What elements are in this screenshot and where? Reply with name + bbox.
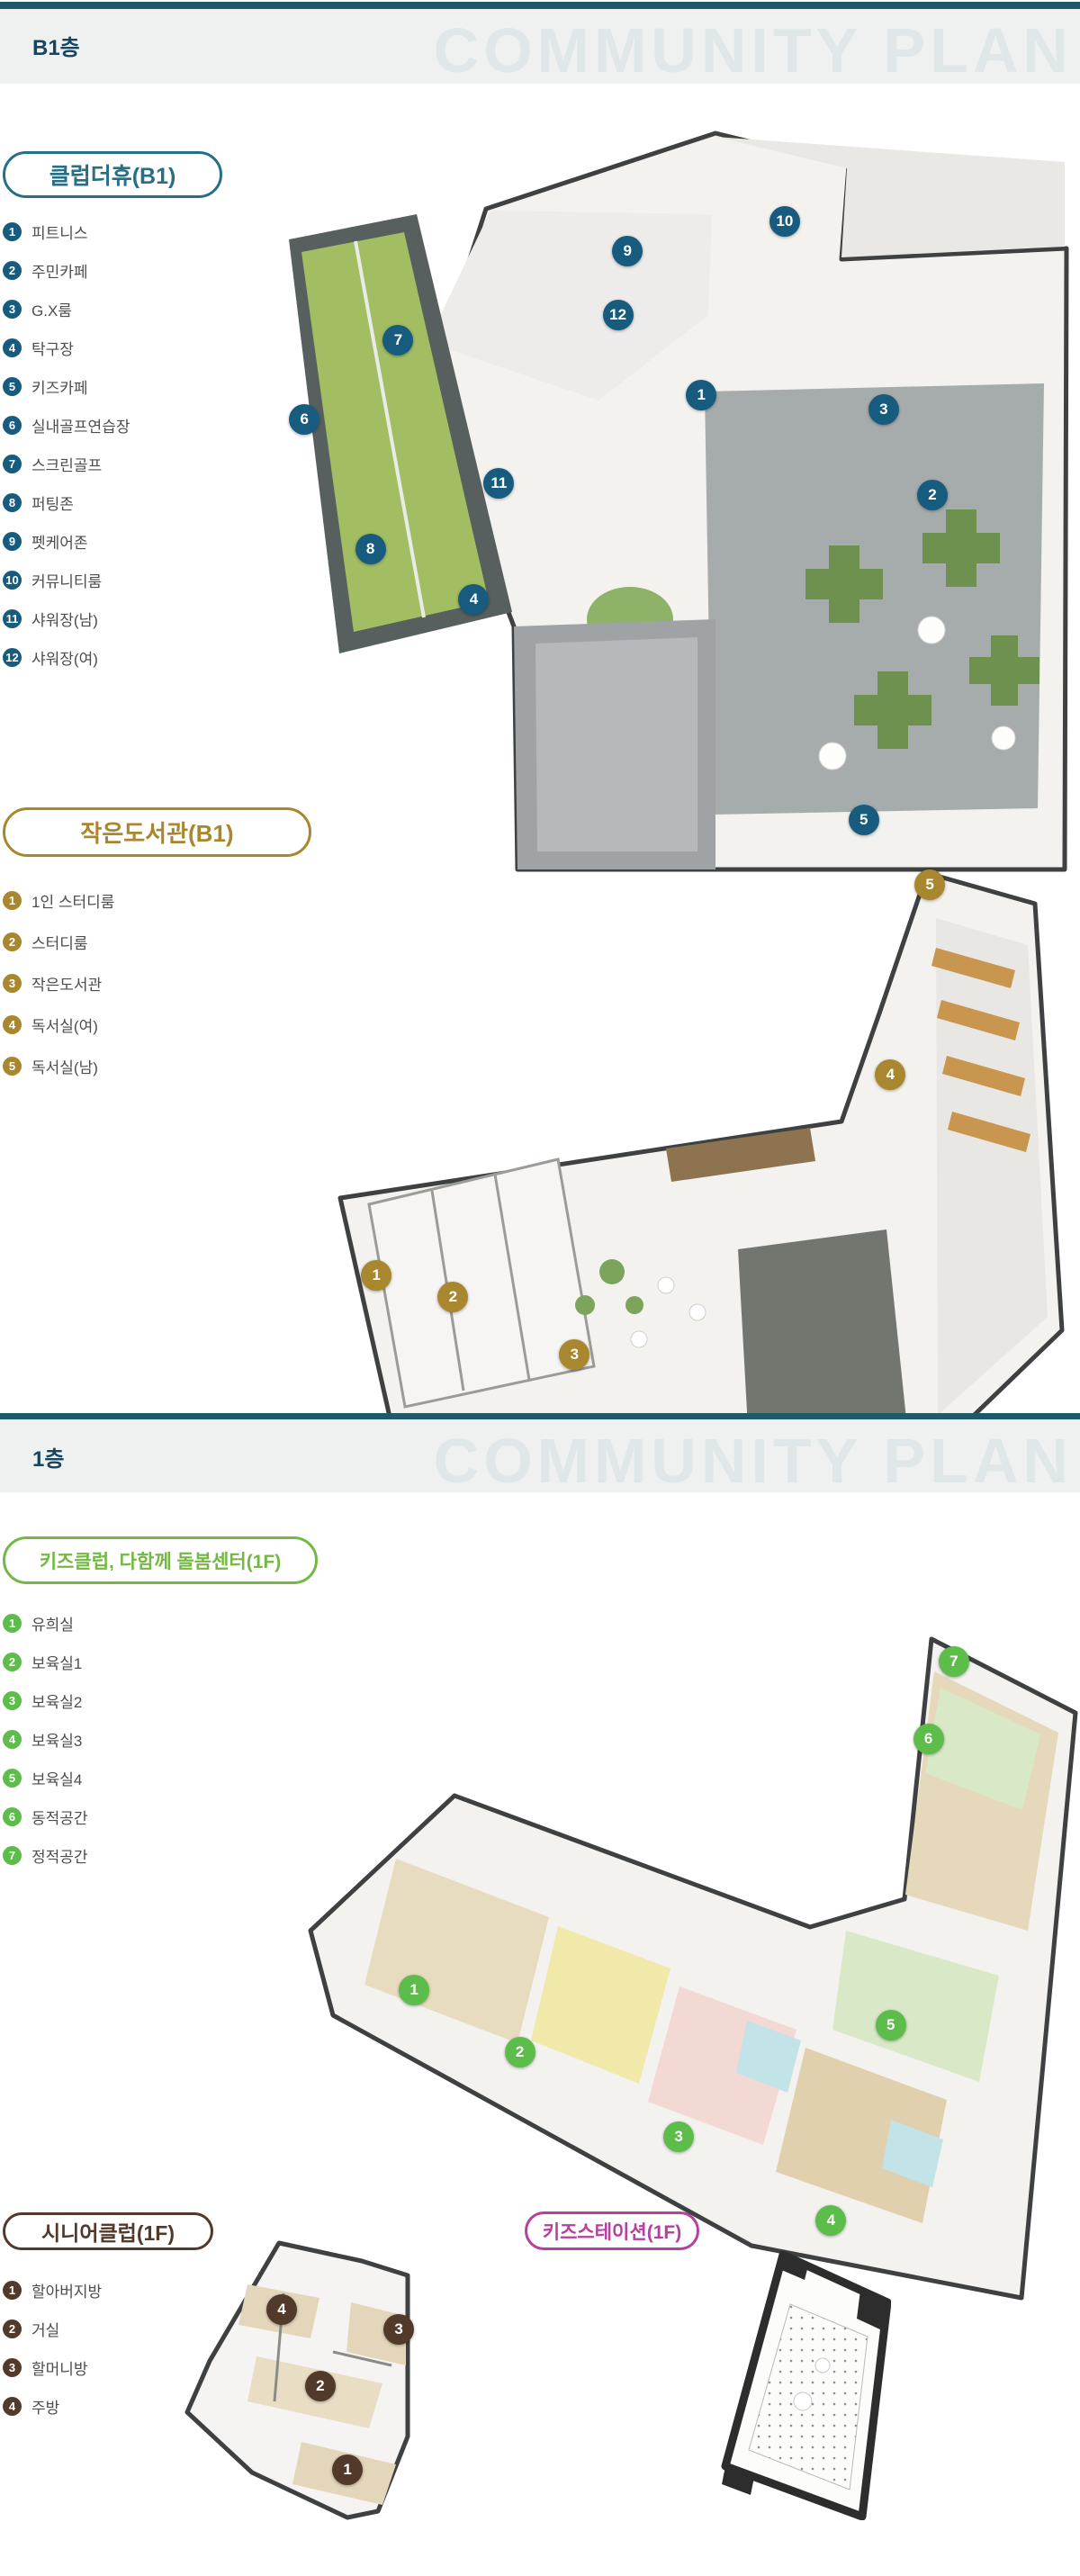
legend-item: 11샤워장(남) (3, 609, 130, 628)
club-umbrella (918, 617, 945, 644)
legend-item: 2스터디룸 (3, 932, 114, 951)
legend-item-label: 샤워장(남) (31, 608, 98, 630)
legend-item: 6실내골프연습장 (3, 416, 130, 435)
legend-item: 8퍼팅존 (3, 493, 130, 512)
plan-marker-kids-6: 6 (913, 1724, 944, 1754)
plan-marker-library-2: 2 (437, 1282, 468, 1312)
legend-number-badge: 1 (3, 1614, 22, 1633)
legend-item-label: 할아버지방 (31, 2279, 102, 2301)
legend-club-the-hue: 1피트니스2주민카페3G.X룸4탁구장5키즈카페6실내골프연습장7스크린골프8퍼… (3, 222, 130, 687)
floor-title-1f: 1층 (32, 1441, 64, 1473)
legend-number-badge: 5 (3, 1769, 22, 1788)
legend-item-label: 보육실2 (31, 1689, 82, 1712)
legend-number-badge: 1 (3, 2281, 22, 2300)
legend-item-label: 독서실(여) (31, 1013, 98, 1036)
legend-item-label: 거실 (31, 2318, 59, 2340)
floorplan-senior-club: 1234 (175, 2239, 423, 2526)
plan-marker-club-3: 3 (868, 394, 899, 425)
plan-marker-club-4: 4 (458, 584, 489, 615)
plan-marker-kids-1: 1 (399, 1975, 429, 2005)
legend-item: 1할아버지방 (3, 2281, 102, 2300)
legend-number-badge: 2 (3, 2319, 22, 2338)
legend-number-badge: 5 (3, 377, 22, 396)
legend-item: 1유희실 (3, 1614, 88, 1633)
legend-number-badge: 4 (3, 1730, 22, 1749)
library-study-rooms (369, 1159, 594, 1407)
legend-number-badge: 1 (3, 891, 22, 910)
section-accent-line (0, 1413, 1080, 1419)
legend-number-badge: 4 (3, 1015, 22, 1034)
legend-number-badge: 2 (3, 932, 22, 951)
legend-item-label: 키즈카페 (31, 375, 88, 398)
legend-kids-club: 1유희실2보육실13보육실24보육실35보육실46동적공간7정적공간 (3, 1614, 88, 1885)
legend-item-label: G.X룸 (31, 298, 72, 320)
legend-item: 5키즈카페 (3, 377, 130, 396)
legend-item: 3작은도서관 (3, 974, 114, 993)
legend-number-badge: 7 (3, 455, 22, 473)
kids-station-table (794, 2392, 812, 2410)
legend-item: 3보육실2 (3, 1691, 88, 1710)
legend-item-label: 샤워장(여) (31, 646, 98, 669)
legend-item-label: 보육실4 (31, 1767, 82, 1789)
legend-number-badge: 12 (3, 648, 22, 667)
plan-marker-club-6: 6 (289, 404, 319, 435)
plan-marker-library-3: 3 (559, 1339, 589, 1370)
legend-item: 5보육실4 (3, 1769, 88, 1788)
legend-number-badge: 6 (3, 1807, 22, 1826)
legend-item: 9펫케어존 (3, 532, 130, 551)
legend-item: 12샤워장(여) (3, 648, 130, 667)
legend-item-label: 독서실(남) (31, 1055, 98, 1077)
library-plants (575, 1295, 595, 1315)
plan-marker-kids-3: 3 (663, 2121, 694, 2152)
legend-item-label: 주민카페 (31, 259, 88, 282)
legend-item: 7정적공간 (3, 1846, 88, 1865)
group-pill-kids-club: 키즈클럽, 다함께 돌봄센터(1F) (3, 1536, 318, 1584)
club-multipurpose-floor (535, 637, 697, 851)
plan-marker-club-10: 10 (769, 206, 800, 237)
plan-marker-club-11: 11 (483, 468, 514, 499)
floorplan-kids-club: 1234567 (261, 1634, 1080, 2304)
plan-marker-club-9: 9 (612, 236, 643, 266)
legend-item: 11인 스터디룸 (3, 891, 114, 910)
plan-marker-library-1: 1 (361, 1260, 391, 1291)
legend-item: 3할머니방 (3, 2358, 102, 2377)
legend-number-badge: 2 (3, 1653, 22, 1671)
plan-marker-library-5: 5 (914, 869, 945, 900)
legend-item: 2보육실1 (3, 1653, 88, 1671)
legend-item: 2주민카페 (3, 261, 130, 280)
plan-marker-club-5: 5 (849, 805, 879, 835)
legend-item-label: 스터디룸 (31, 931, 88, 953)
legend-number-badge: 3 (3, 974, 22, 993)
plan-marker-kids-7: 7 (939, 1646, 969, 1677)
legend-item: 2거실 (3, 2319, 102, 2338)
legend-number-badge: 10 (3, 571, 22, 590)
legend-item: 5독서실(남) (3, 1057, 114, 1076)
plan-marker-senior-3: 3 (383, 2314, 414, 2345)
legend-number-badge: 5 (3, 1057, 22, 1076)
legend-number-badge: 6 (3, 416, 22, 435)
legend-item-label: 정적공간 (31, 1844, 88, 1867)
floorplan-club-illustration (211, 126, 1080, 878)
legend-item-label: 보육실3 (31, 1728, 82, 1751)
legend-item: 4독서실(여) (3, 1015, 114, 1034)
legend-item-label: 커뮤니티룸 (31, 569, 102, 591)
legend-small-library: 11인 스터디룸2스터디룸3작은도서관4독서실(여)5독서실(남) (3, 891, 114, 1098)
legend-senior-club: 1할아버지방2거실3할머니방4주방 (3, 2281, 102, 2436)
kids-station-table (815, 2358, 830, 2373)
floorplan-senior-illustration (175, 2239, 423, 2526)
plan-marker-kids-5: 5 (876, 2010, 906, 2040)
legend-item-label: 실내골프연습장 (31, 414, 130, 437)
floorplan-kids-illustration (261, 1634, 1080, 2304)
floorplan-kids-station (702, 2250, 891, 2520)
group-pill-club-the-hue: 클럽더휴(B1) (3, 151, 222, 198)
legend-number-badge: 3 (3, 300, 22, 319)
legend-item-label: 주방 (31, 2395, 59, 2418)
floorplan-small-library: 12345 (306, 851, 1080, 1472)
legend-item: 4탁구장 (3, 338, 130, 357)
plan-marker-senior-1: 1 (332, 2454, 363, 2485)
legend-number-badge: 4 (3, 338, 22, 357)
floorplan-club-the-hue: 123456789101112 (211, 126, 1080, 878)
legend-item-label: 동적공간 (31, 1806, 88, 1828)
community-plan-page: COMMUNITY PLAN B1층 클럽더휴(B1) 작은도서관(B1) 키즈… (0, 0, 1080, 2576)
club-umbrella (992, 726, 1015, 750)
legend-number-badge: 7 (3, 1846, 22, 1865)
plan-marker-kids-2: 2 (505, 2037, 535, 2067)
community-plan-watermark: COMMUNITY PLAN (434, 19, 1073, 82)
legend-item: 4주방 (3, 2397, 102, 2416)
plan-marker-senior-2: 2 (305, 2371, 336, 2401)
legend-number-badge: 1 (3, 222, 22, 241)
legend-number-badge: 9 (3, 532, 22, 551)
legend-number-badge: 3 (3, 1691, 22, 1710)
plan-marker-senior-4: 4 (266, 2294, 297, 2325)
legend-number-badge: 8 (3, 493, 22, 512)
plan-marker-club-7: 7 (382, 325, 413, 356)
library-reading-room (738, 1229, 907, 1444)
plan-marker-club-12: 12 (603, 300, 634, 330)
library-table (631, 1331, 647, 1347)
legend-item-label: 1인 스터디룸 (31, 889, 114, 912)
legend-item-label: 피트니스 (31, 221, 88, 243)
legend-item: 7스크린골프 (3, 455, 130, 473)
legend-number-badge: 3 (3, 2358, 22, 2377)
legend-item: 1피트니스 (3, 222, 130, 241)
legend-item: 6동적공간 (3, 1807, 88, 1826)
plan-marker-club-8: 8 (355, 534, 386, 564)
community-plan-watermark: COMMUNITY PLAN (434, 1429, 1073, 1492)
legend-number-badge: 4 (3, 2397, 22, 2416)
library-plants (625, 1296, 643, 1314)
legend-number-badge: 2 (3, 261, 22, 280)
club-umbrella (819, 743, 846, 770)
legend-item-label: 할머니방 (31, 2356, 88, 2379)
plan-marker-club-2: 2 (917, 480, 948, 510)
legend-item-label: 펫케어존 (31, 530, 88, 553)
floorplan-kids-station-illustration (702, 2250, 891, 2520)
library-table (689, 1304, 706, 1320)
floorplan-library-illustration (306, 851, 1080, 1472)
floor-title-b1: B1층 (32, 30, 80, 61)
legend-item: 3G.X룸 (3, 300, 130, 319)
plan-marker-kids-4: 4 (815, 2205, 846, 2236)
legend-item-label: 보육실1 (31, 1651, 82, 1673)
section-accent-line (0, 2, 1080, 9)
legend-item: 10커뮤니티룸 (3, 571, 130, 590)
legend-item-label: 유희실 (31, 1612, 74, 1635)
legend-number-badge: 11 (3, 609, 22, 628)
plan-marker-club-1: 1 (686, 380, 716, 410)
plan-marker-library-4: 4 (875, 1059, 905, 1090)
legend-item-label: 스크린골프 (31, 453, 102, 475)
legend-item-label: 퍼팅존 (31, 491, 74, 514)
library-table (658, 1277, 674, 1293)
legend-item-label: 작은도서관 (31, 972, 102, 995)
legend-item-label: 탁구장 (31, 337, 74, 359)
legend-item: 4보육실3 (3, 1730, 88, 1749)
library-plants (599, 1259, 625, 1284)
